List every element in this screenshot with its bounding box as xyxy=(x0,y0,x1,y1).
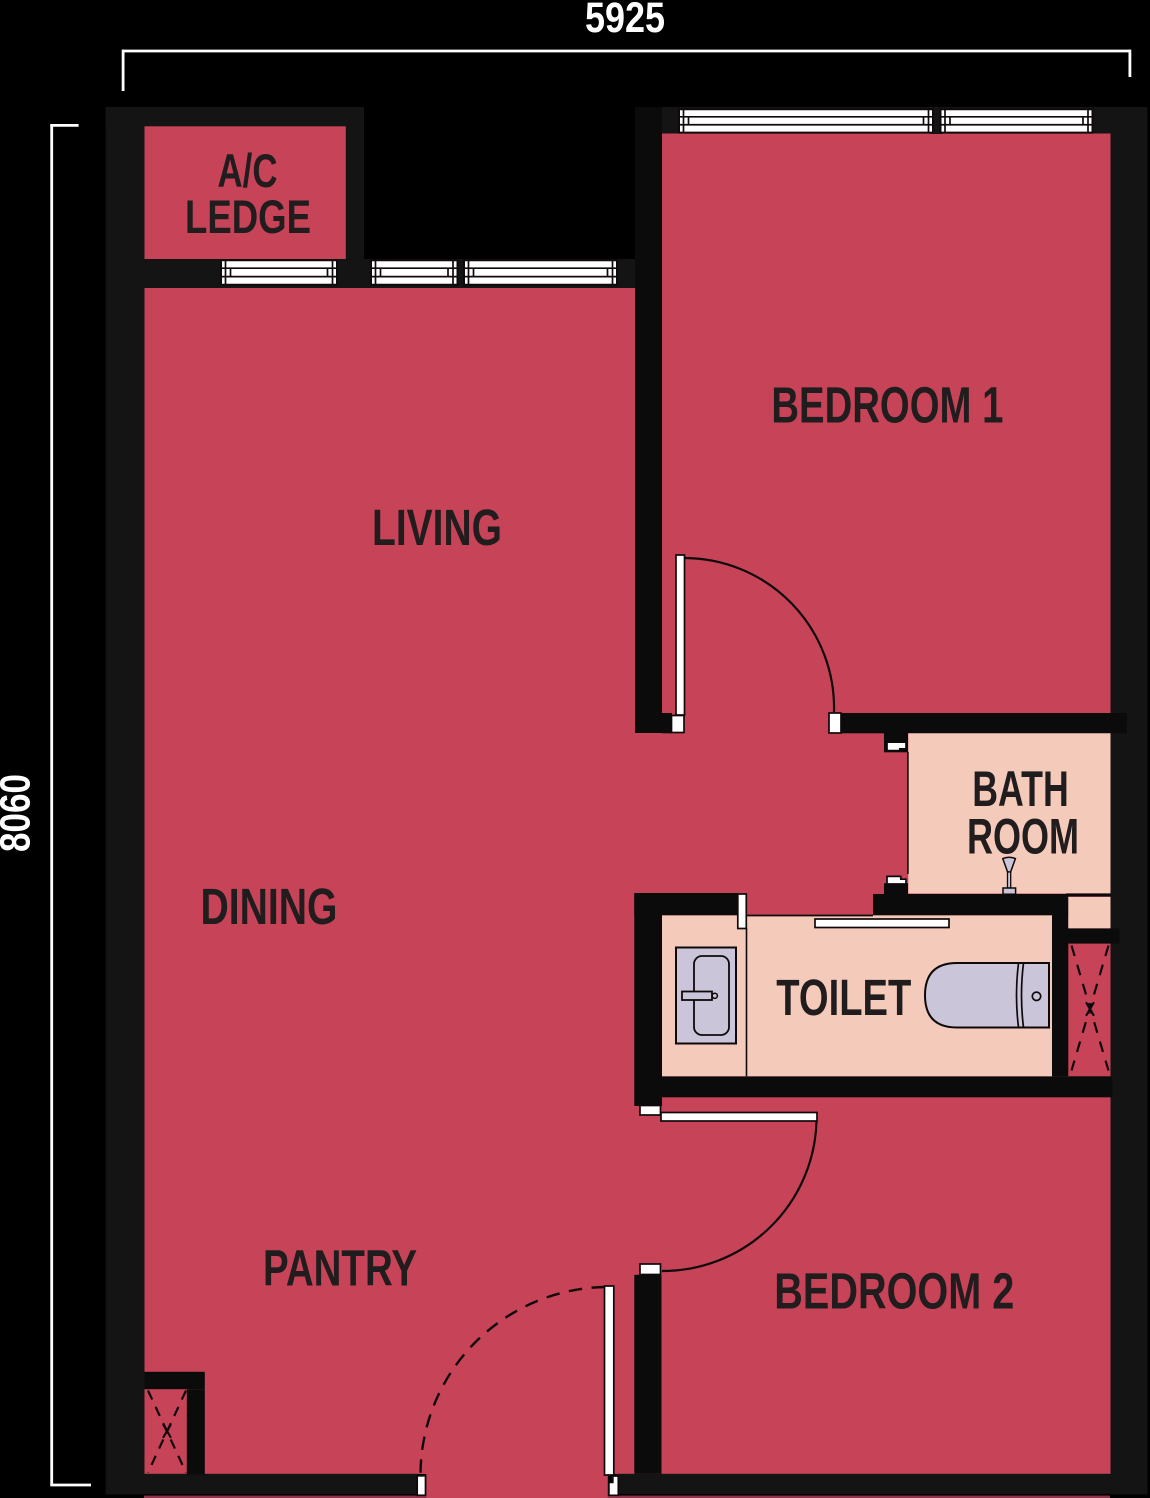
svg-text:TOILET: TOILET xyxy=(776,969,911,1026)
svg-text:LIVING: LIVING xyxy=(372,499,502,556)
svg-text:DINING: DINING xyxy=(201,878,338,935)
svg-text:BEDROOM 2: BEDROOM 2 xyxy=(774,1263,1014,1320)
svg-text:5925: 5925 xyxy=(585,0,665,42)
svg-text:ROOM: ROOM xyxy=(967,809,1079,865)
svg-text:BEDROOM 1: BEDROOM 1 xyxy=(771,377,1003,434)
svg-text:PANTRY: PANTRY xyxy=(263,1239,417,1296)
svg-text:8060: 8060 xyxy=(0,774,40,852)
svg-text:LEDGE: LEDGE xyxy=(185,190,311,243)
